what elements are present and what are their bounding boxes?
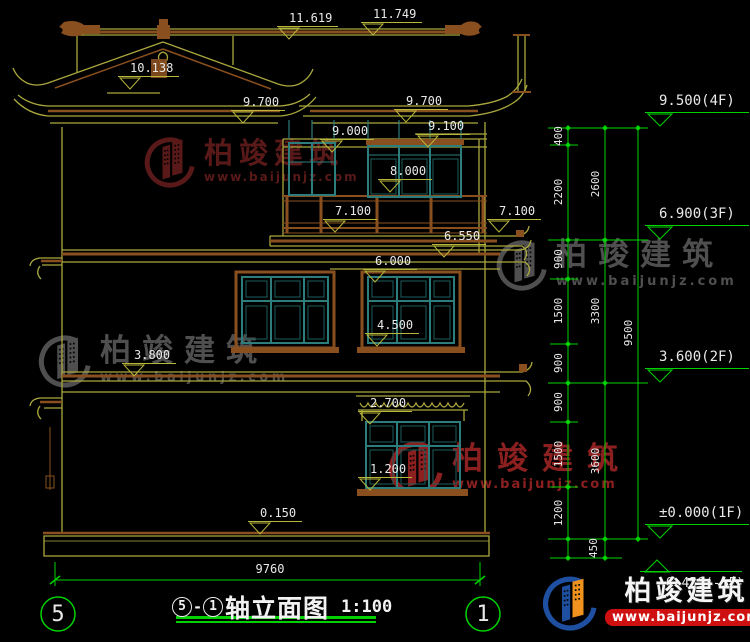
elevation-mark-rail-right: 7.100 <box>487 205 541 220</box>
dimension-ticks <box>176 125 641 623</box>
elevation-mark-eave-left: 9.700 <box>231 96 285 111</box>
dim-9500: 9500 <box>622 311 636 355</box>
footer-brand-text: 柏竣建筑 <box>624 578 748 605</box>
elevation-mark-ridge-left: 11.619 <box>277 12 338 27</box>
floor-flag-1f: ±0.000(1F) <box>645 505 749 525</box>
dim-900a: 900 <box>552 237 566 281</box>
dim-1500b: 1500 <box>552 432 566 476</box>
elevation-mark-attic-right: 9.100 <box>416 120 470 135</box>
drawing-title: 5 - 1 轴立面图 1:100 <box>172 589 392 625</box>
dim-450: 450 <box>587 526 601 570</box>
dim-900c: 900 <box>552 380 566 424</box>
baijun-logo-icon <box>540 573 598 631</box>
dim-2600: 2600 <box>589 162 603 206</box>
axis-bubble-5: 5 <box>41 602 75 627</box>
dim-total-width: 9760 <box>246 562 294 576</box>
floor-flag-3f: 6.900(3F) <box>645 206 749 226</box>
elevation-mark-sill1: 1.200 <box>358 463 412 478</box>
floor-flag-4f: 9.500(4F) <box>645 93 749 113</box>
elevation-mark-loft-sill: 8.000 <box>378 165 432 180</box>
elevation-mark-ridge-top: 11.749 <box>361 8 422 23</box>
footer-brand-block: 柏竣建筑 www.baijunjz.com <box>540 573 750 631</box>
title-axis-left: 5 <box>172 597 192 617</box>
title-axis-right: 1 <box>203 597 223 617</box>
dim-3600: 3600 <box>589 439 603 483</box>
cad-elevation-viewport: 柏竣建筑 www.baijunjz.com 柏竣建筑 www.baijunjz.… <box>0 0 750 642</box>
elevation-mark-rail-left: 7.100 <box>323 205 377 220</box>
dim-1200: 1200 <box>552 491 566 535</box>
elevation-mark-eave-right: 9.700 <box>394 95 448 110</box>
axis-bubble-1: 1 <box>466 602 500 627</box>
elevation-mark-sill2: 4.500 <box>365 319 419 334</box>
elevation-mark-belt: 3.800 <box>122 349 176 364</box>
elevation-mark-canopy: 2.700 <box>358 397 412 412</box>
timber-accents <box>40 32 531 533</box>
elevation-mark-plinth: 0.150 <box>248 507 302 522</box>
elevation-mark-attic-left: 9.000 <box>320 125 374 140</box>
floor-flag-2f: 3.600(2F) <box>645 349 749 369</box>
dim-900b: 900 <box>552 341 566 385</box>
dim-3300: 3300 <box>589 289 603 333</box>
title-scale: 1:100 <box>341 597 392 617</box>
dim-2200: 2200 <box>552 170 566 214</box>
dim-1500a: 1500 <box>552 289 566 333</box>
title-separator: - <box>193 598 202 616</box>
title-text: 轴立面图 <box>225 589 329 625</box>
elevation-mark-balcony: 6.550 <box>432 230 486 245</box>
elevation-mark-gable: 10.138 <box>118 62 179 77</box>
elevation-mark-floor3: 6.000 <box>363 255 417 270</box>
dim-400: 400 <box>552 114 566 158</box>
footer-url: www.baijunjz.com <box>605 609 750 626</box>
